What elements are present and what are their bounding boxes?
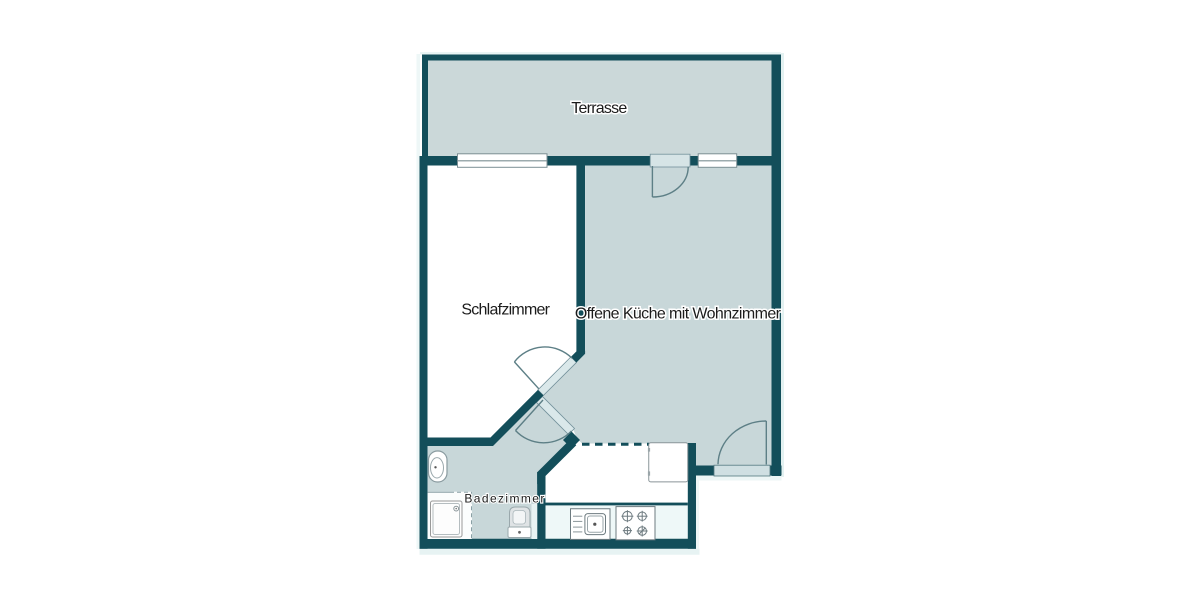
svg-text:Schlafzimmer: Schlafzimmer bbox=[461, 302, 550, 319]
svg-text:Badezimmer: Badezimmer bbox=[464, 492, 545, 506]
svg-text:Terrasse: Terrasse bbox=[571, 100, 627, 117]
svg-text:Offene Küche mit Wohnzimmer: Offene Küche mit Wohnzimmer bbox=[575, 305, 782, 322]
